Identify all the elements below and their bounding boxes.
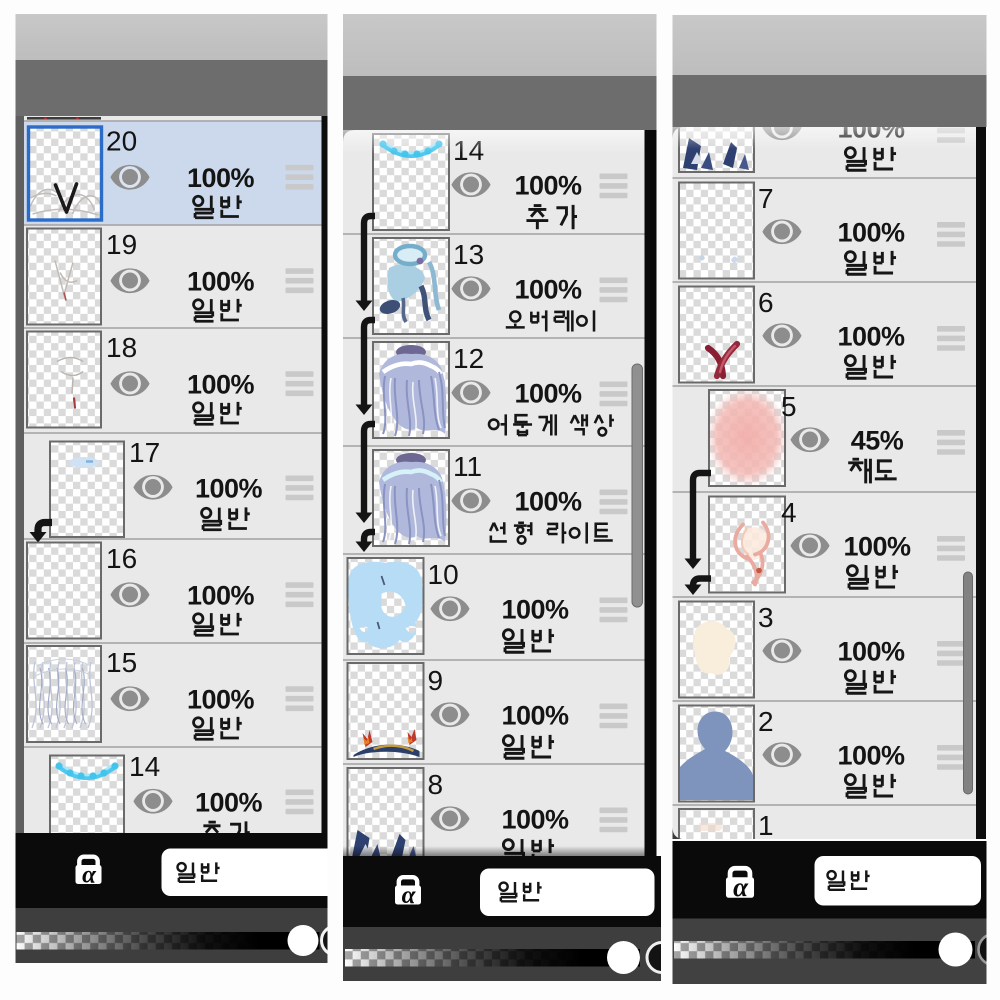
svg-text:9: 9	[428, 665, 444, 696]
svg-text:1: 1	[758, 810, 774, 841]
svg-text:19: 19	[106, 229, 137, 260]
svg-text:100%: 100%	[501, 595, 569, 625]
svg-text:8: 8	[428, 769, 444, 800]
svg-text:7: 7	[758, 183, 774, 214]
svg-text:5: 5	[781, 391, 797, 422]
svg-text:15: 15	[106, 647, 137, 678]
svg-text:100%: 100%	[843, 532, 911, 562]
svg-text:3: 3	[758, 602, 774, 633]
svg-text:11: 11	[453, 451, 482, 482]
svg-text:14: 14	[129, 751, 160, 782]
svg-text:13: 13	[453, 239, 484, 270]
svg-text:20: 20	[106, 126, 137, 157]
svg-text:100%: 100%	[187, 685, 255, 715]
svg-text:100%: 100%	[195, 788, 263, 818]
svg-text:100%: 100%	[187, 370, 255, 400]
svg-text:4: 4	[781, 497, 797, 528]
svg-text:12: 12	[453, 343, 484, 374]
svg-text:17: 17	[129, 437, 160, 468]
svg-text:100%: 100%	[501, 805, 569, 835]
svg-text:2: 2	[758, 706, 774, 737]
svg-text:100%: 100%	[187, 267, 255, 297]
svg-text:100%: 100%	[837, 322, 905, 352]
svg-text:100%: 100%	[195, 474, 263, 504]
svg-text:10: 10	[428, 559, 459, 590]
svg-text:100%: 100%	[514, 487, 582, 517]
svg-text:100%: 100%	[514, 171, 582, 201]
svg-text:16: 16	[106, 543, 137, 574]
svg-text:100%: 100%	[187, 581, 255, 611]
svg-text:100%: 100%	[837, 218, 905, 248]
svg-text:100%: 100%	[187, 163, 255, 193]
svg-text:6: 6	[758, 287, 774, 318]
svg-text:100%: 100%	[837, 741, 905, 771]
svg-text:18: 18	[106, 332, 137, 363]
svg-text:100%: 100%	[837, 637, 905, 667]
svg-text:100%: 100%	[514, 379, 582, 409]
svg-text:45%: 45%	[851, 426, 904, 456]
svg-text:100%: 100%	[514, 275, 582, 305]
svg-text:100%: 100%	[501, 701, 569, 731]
